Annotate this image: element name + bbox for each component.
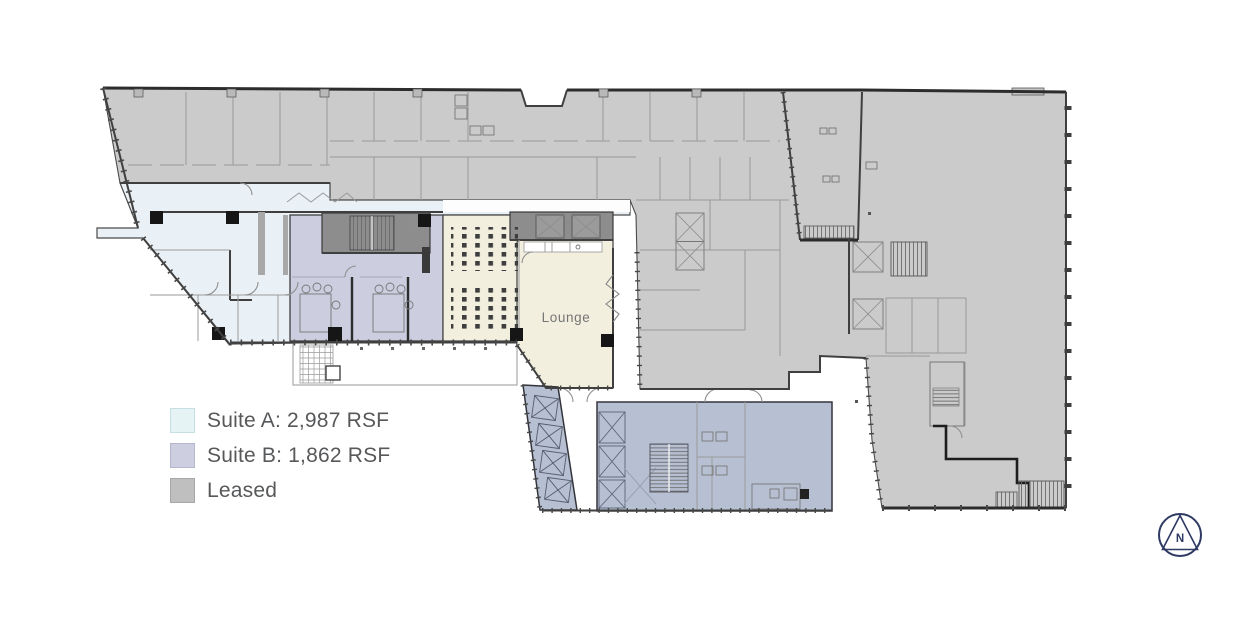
floor-plan-svg: Lounge N [0, 0, 1260, 620]
stair [1019, 481, 1064, 507]
legend-item-suite-a: Suite A: 2,987 RSF [170, 409, 390, 432]
floor-plan-page: Lounge N Suite A: 2,987 RSF Suite B: 1,8… [0, 0, 1260, 620]
balcony [293, 343, 517, 385]
legend-swatch-suite-b [170, 443, 195, 468]
legend: Suite A: 2,987 RSF Suite B: 1,862 RSF Le… [170, 409, 390, 514]
kitchenette-counter [524, 242, 602, 252]
stair [891, 242, 927, 276]
legend-label-suite-a: Suite A: 2,987 RSF [207, 409, 389, 433]
legend-swatch-suite-a [170, 408, 195, 433]
legend-item-leased: Leased [170, 479, 390, 502]
legend-item-suite-b: Suite B: 1,862 RSF [170, 444, 390, 467]
mechanical-shaft-band [510, 212, 613, 240]
lounge-label: Lounge [542, 310, 591, 325]
corridor [443, 200, 630, 212]
legend-label-suite-b: Suite B: 1,862 RSF [207, 444, 390, 468]
legend-swatch-leased [170, 478, 195, 503]
legend-label-leased: Leased [207, 479, 277, 503]
compass-letter: N [1176, 533, 1184, 545]
north-arrow: N [1159, 514, 1201, 556]
appliance [800, 489, 809, 499]
